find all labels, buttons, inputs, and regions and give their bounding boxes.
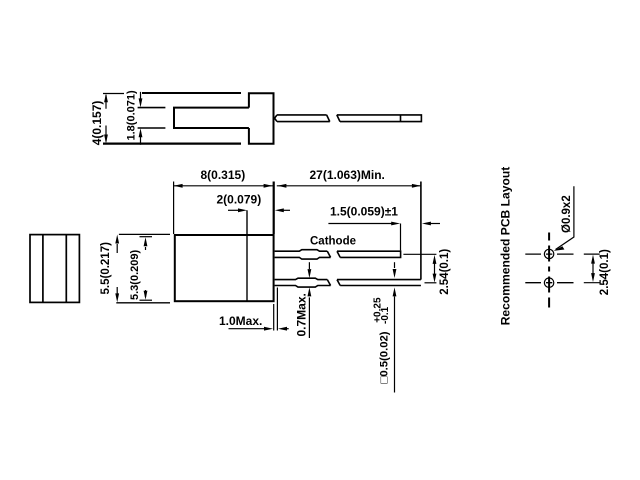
svg-text:2.54(0.1): 2.54(0.1) [439,249,451,295]
svg-text:27(1.063)Min.: 27(1.063)Min. [310,168,385,182]
svg-text:0.7Max.: 0.7Max. [295,293,309,336]
svg-text:4(0.157): 4(0.157) [90,101,104,146]
svg-text:1.8(0.071): 1.8(0.071) [126,90,138,140]
svg-text:□0.5(0.02): □0.5(0.02) [379,331,391,383]
svg-text:Recommended PCB Layout: Recommended PCB Layout [499,167,513,326]
svg-text:5.5(0.217): 5.5(0.217) [100,242,112,295]
svg-text:2.54(0.1): 2.54(0.1) [599,249,611,295]
svg-text:1.0Max.: 1.0Max. [219,314,262,328]
svg-text:2(0.079): 2(0.079) [217,192,262,206]
svg-text:Ø0.9x2: Ø0.9x2 [561,195,573,233]
svg-text:1.5(0.059)±1: 1.5(0.059)±1 [330,205,398,219]
svg-text:8(0.315): 8(0.315) [201,168,246,182]
svg-text:-0.1: -0.1 [380,306,391,324]
svg-text:Cathode: Cathode [310,236,356,248]
svg-text:5.3(0.209): 5.3(0.209) [129,250,141,300]
